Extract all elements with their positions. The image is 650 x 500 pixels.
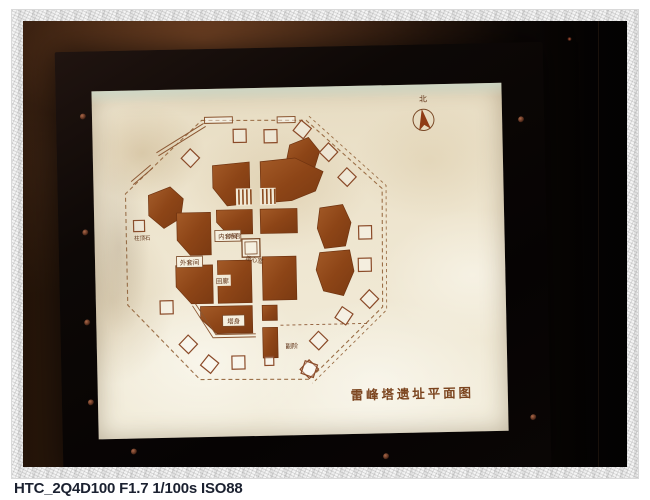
label-corridor: 回廊 [216,276,230,285]
screw-icon [518,116,524,122]
screw-icon [383,453,389,459]
screw-icon [80,114,86,120]
stair-hatching [236,188,276,206]
plan-title: 雷峰塔遗址平面图 [351,385,475,403]
wall-glint [567,37,572,41]
label-underground-palace: 地宫 [229,232,241,240]
label-north: 北 [419,95,427,104]
screw-icon [131,449,137,455]
site-plan-drawing: 内套间 外套间 塔身 地宫 塔心室 回廊 副阶 [91,83,508,440]
display-case-frame: 内套间 外套间 塔身 地宫 塔心室 回廊 副阶 [55,42,552,467]
screw-icon [84,319,90,325]
museum-photo: 内套间 外套间 塔身 地宫 塔心室 回廊 副阶 [23,21,627,467]
exif-caption: HTC_2Q4D100 F1.7 1/100s ISO88 [14,480,243,497]
backlit-panel: 内套间 外套间 塔身 地宫 塔心室 回廊 副阶 [91,83,508,440]
screw-icon [88,399,94,405]
wall-seam [598,21,599,467]
photo-border: 内套间 外套间 塔身 地宫 塔心室 回廊 副阶 [11,9,639,479]
screw-icon [530,414,536,420]
label-plinth: 柱顶石 [134,234,151,242]
label-portico: 副阶 [285,341,299,350]
label-outer-suite: 外套间 [180,258,200,267]
north-arrow-icon [411,107,435,132]
label-pagoda-body: 塔身 [227,316,241,325]
photo-post: 内套间 外套间 塔身 地宫 塔心室 回廊 副阶 [0,0,650,500]
crypt-square [242,239,260,258]
screw-icon [82,229,88,235]
